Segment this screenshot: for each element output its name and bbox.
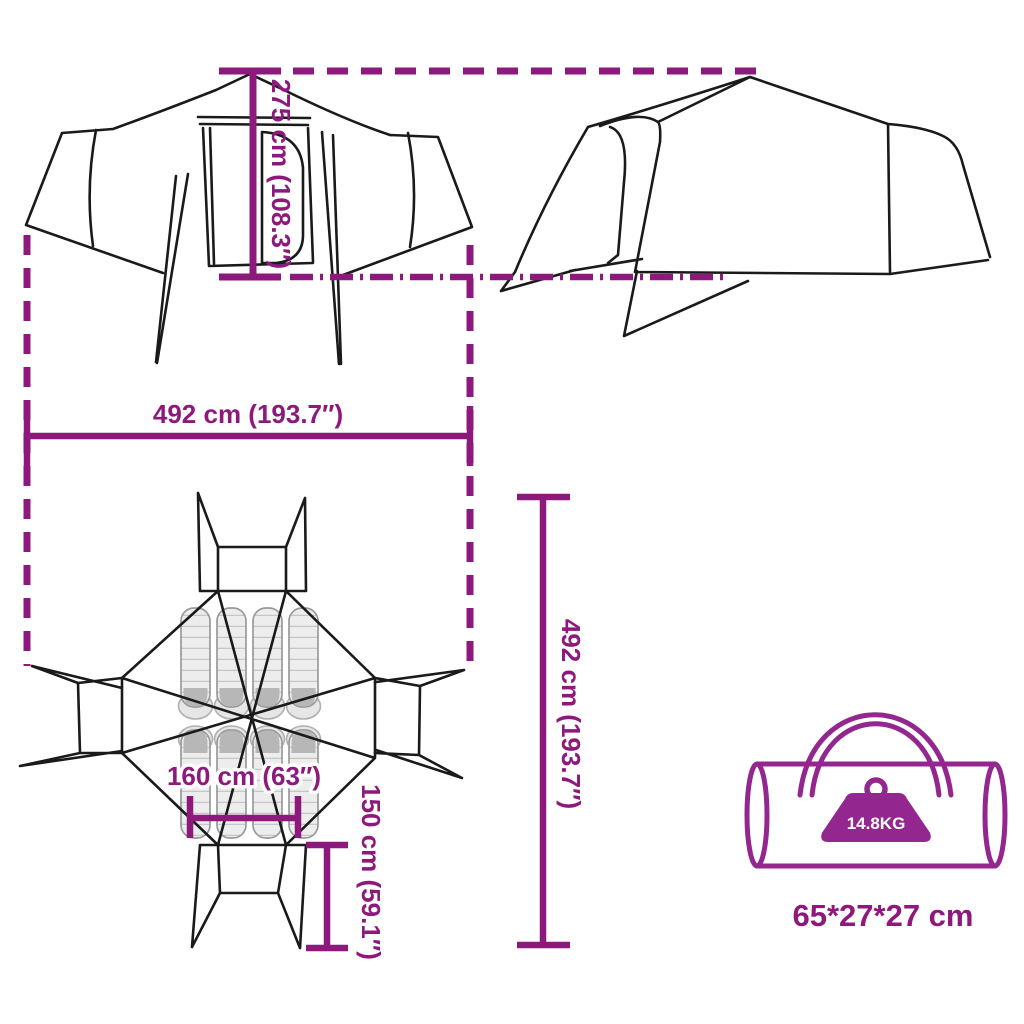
inner-width-dimension-label: 160 cm (63″) [167,761,321,791]
depth-dimension: 492 cm (193.7″) [517,497,586,945]
package-weight-label: 14.8KG [847,814,906,833]
floorplan-vestibules [20,493,464,948]
tent-side-view [501,77,990,336]
tent-side-outline [501,77,990,336]
tent-front-outline [26,74,472,364]
inner-height-dimension-line [306,845,348,948]
height-dimension: 275 cm (108.3″) [219,71,296,277]
carry-bag-icon: 14.8KG 65*27*27 cm [747,715,1005,933]
width-dimension: 492 cm (193.7″) [27,399,470,466]
width-dimension-label: 492 cm (193.7″) [153,399,343,429]
tent-dimensions-diagram: 275 cm (108.3″) 492 cm (193.7″) 492 cm (… [0,0,1024,1024]
sleeping-bag-icon [215,608,249,719]
tent-floorplan-view [20,493,464,948]
carry-bag-handle [800,715,951,795]
package-size-label: 65*27*27 cm [793,898,974,933]
weight-icon: 14.8KG [822,780,930,841]
carry-bag-right-end [985,764,1005,866]
height-dimension-label: 275 cm (108.3″) [266,79,296,269]
projection-guide-lines [27,71,760,670]
depth-dimension-label: 492 cm (193.7″) [556,619,586,809]
floorplan-octagon-and-poles [122,591,375,845]
inner-height-dimension-label: 150 cm (59.1″) [356,784,386,960]
tent-front-view [26,74,472,364]
carry-bag-left-end [747,764,767,866]
